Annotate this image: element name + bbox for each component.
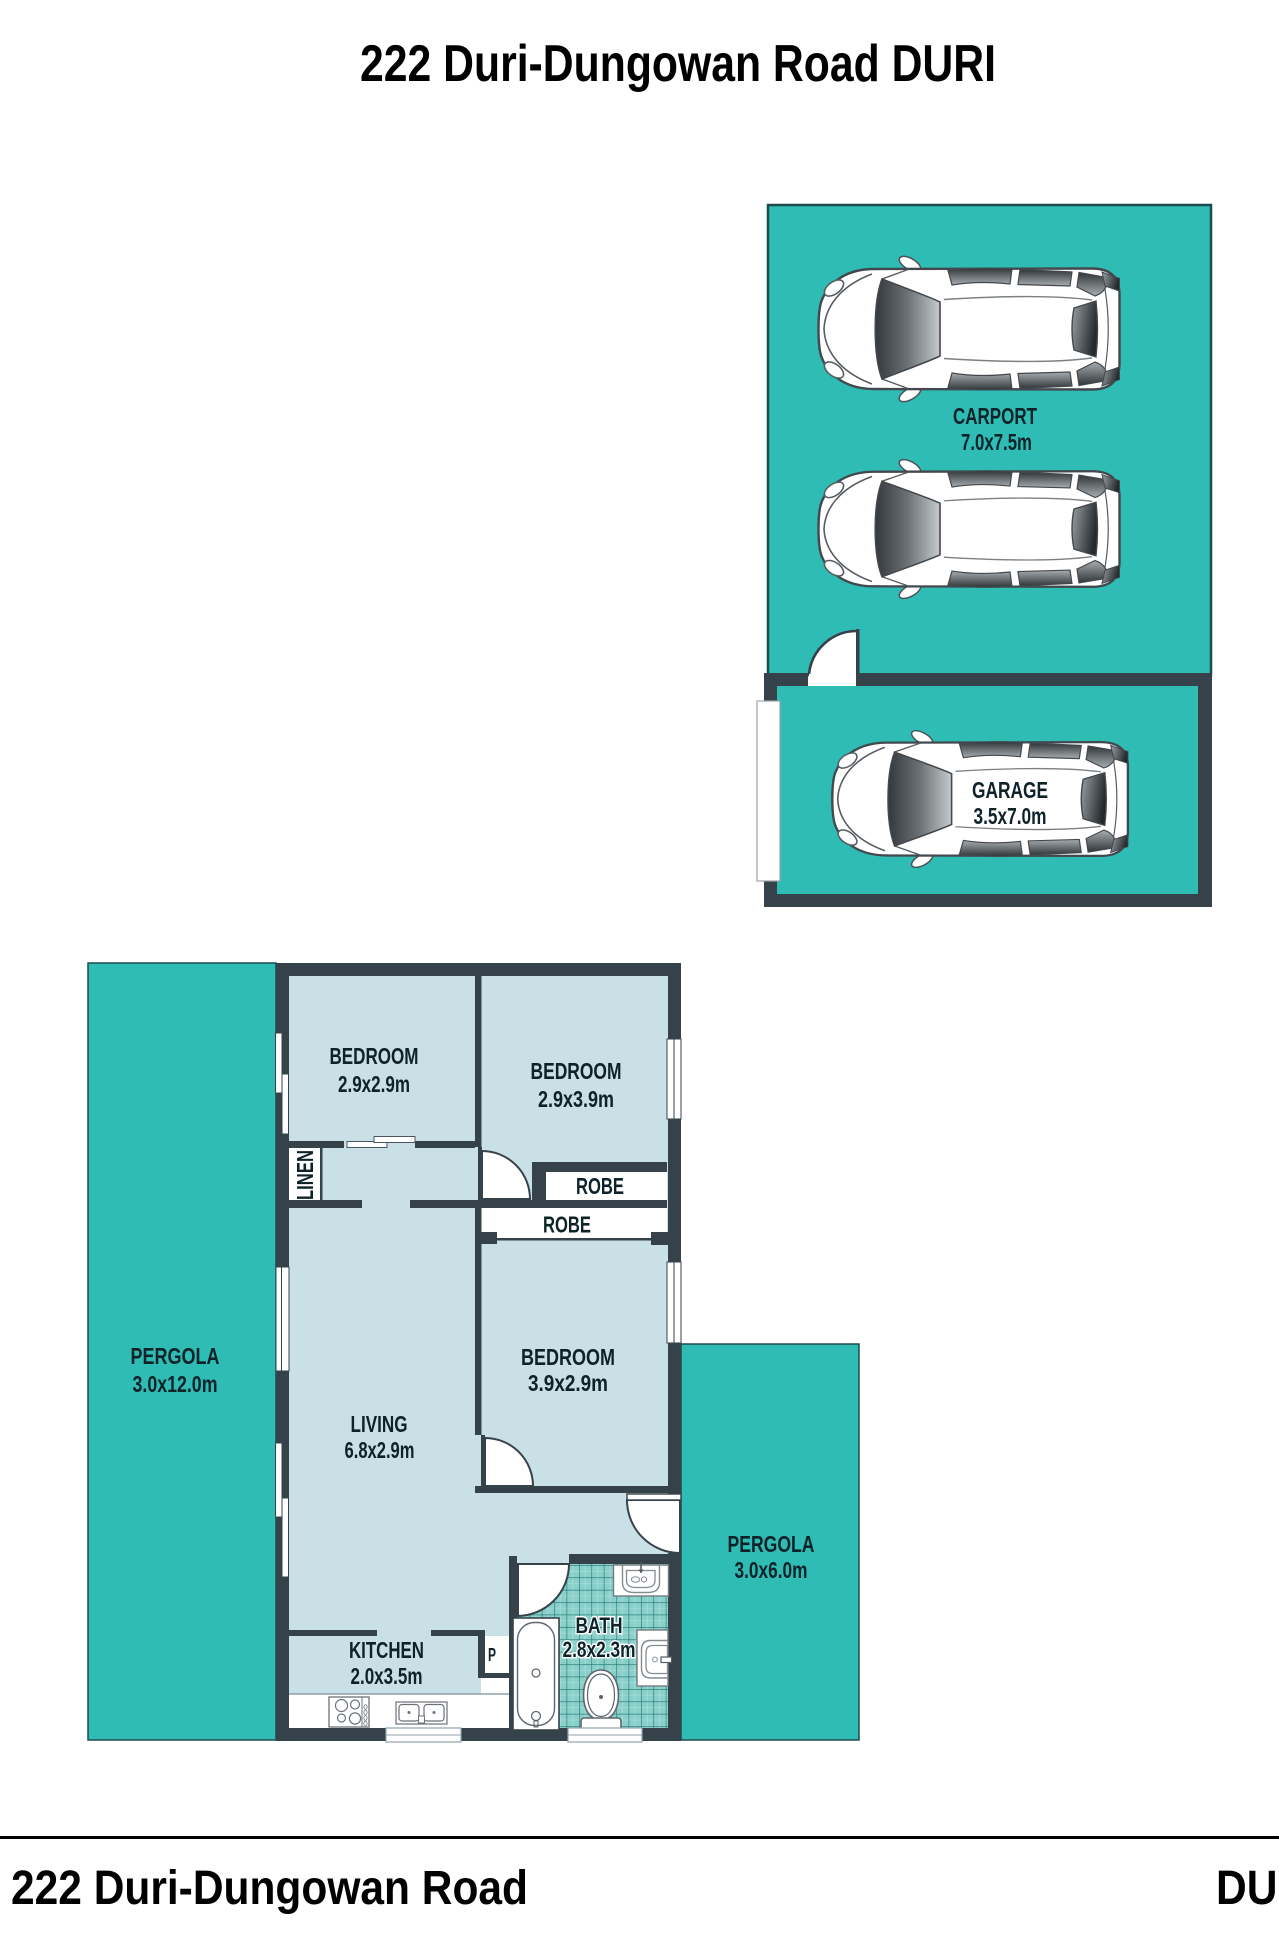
svg-text:ROBE: ROBE: [543, 1212, 591, 1238]
svg-text:PERGOLA: PERGOLA: [728, 1531, 815, 1557]
svg-text:LINEN: LINEN: [292, 1150, 318, 1200]
svg-text:3.0x12.0m: 3.0x12.0m: [133, 1371, 218, 1397]
svg-text:KITCHEN: KITCHEN: [349, 1637, 424, 1663]
svg-text:6.8x2.9m: 6.8x2.9m: [345, 1437, 415, 1463]
svg-text:2.9x3.9m: 2.9x3.9m: [538, 1086, 614, 1112]
svg-text:2.9x2.9m: 2.9x2.9m: [338, 1071, 410, 1097]
svg-text:2.0x3.5m: 2.0x3.5m: [351, 1663, 423, 1689]
svg-text:2.8x2.3m: 2.8x2.3m: [563, 1637, 636, 1662]
svg-text:222 Duri-Dungowan Road DURI: 222 Duri-Dungowan Road DURI: [360, 35, 996, 93]
svg-text:LIVING: LIVING: [351, 1411, 408, 1437]
svg-text:BEDROOM: BEDROOM: [330, 1043, 419, 1069]
svg-text:3.9x2.9m: 3.9x2.9m: [528, 1370, 608, 1396]
svg-text:P: P: [488, 1644, 496, 1665]
svg-text:GARAGE: GARAGE: [972, 777, 1048, 803]
svg-text:DURI: DURI: [1216, 1861, 1279, 1915]
svg-text:3.0x6.0m: 3.0x6.0m: [735, 1557, 808, 1583]
svg-text:PERGOLA: PERGOLA: [131, 1343, 220, 1369]
svg-text:BEDROOM: BEDROOM: [531, 1058, 622, 1084]
svg-text:BEDROOM: BEDROOM: [521, 1344, 615, 1370]
svg-text:3.5x7.0m: 3.5x7.0m: [974, 803, 1047, 829]
svg-text:7.0x7.5m: 7.0x7.5m: [961, 429, 1032, 455]
svg-text:CARPORT: CARPORT: [953, 403, 1037, 429]
svg-text:222 Duri-Dungowan Road: 222 Duri-Dungowan Road: [11, 1861, 528, 1915]
svg-text:BATH: BATH: [576, 1613, 623, 1638]
svg-text:ROBE: ROBE: [576, 1173, 624, 1199]
